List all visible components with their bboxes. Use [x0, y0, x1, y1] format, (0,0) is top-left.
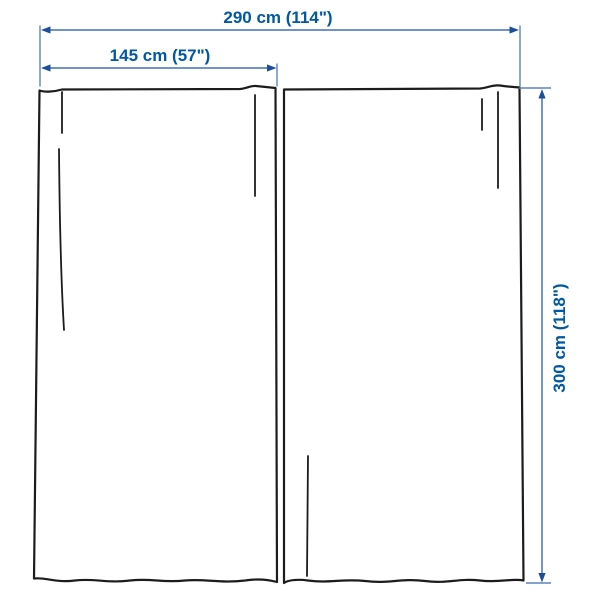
- panel-height-label: 300 cm (118"): [550, 283, 569, 392]
- arrowhead-right: [510, 26, 520, 33]
- total-width-label: 290 cm (114"): [223, 8, 332, 27]
- curtain-panel-right: [284, 85, 524, 583]
- curtain-fold-line: [307, 456, 308, 576]
- product-dimension-image: 290 cm (114") 145 cm (57") 300 cm (118"): [0, 0, 600, 600]
- arrowhead-left: [41, 64, 51, 71]
- panel-width-label: 145 cm (57"): [110, 46, 211, 65]
- dimension-panel-width: 145 cm (57"): [41, 46, 277, 87]
- curtains-diagram-svg: 290 cm (114") 145 cm (57") 300 cm (118"): [0, 0, 600, 600]
- curtain-panel-right-outline: [284, 85, 524, 583]
- dimension-panel-height: 300 cm (118"): [519, 88, 569, 583]
- arrowhead-left: [41, 26, 51, 33]
- arrowhead-down: [538, 573, 545, 583]
- curtain-panel-left-outline: [34, 86, 277, 582]
- curtain-panel-left: [34, 86, 277, 582]
- arrowhead-right: [267, 64, 277, 71]
- arrowhead-up: [538, 89, 545, 99]
